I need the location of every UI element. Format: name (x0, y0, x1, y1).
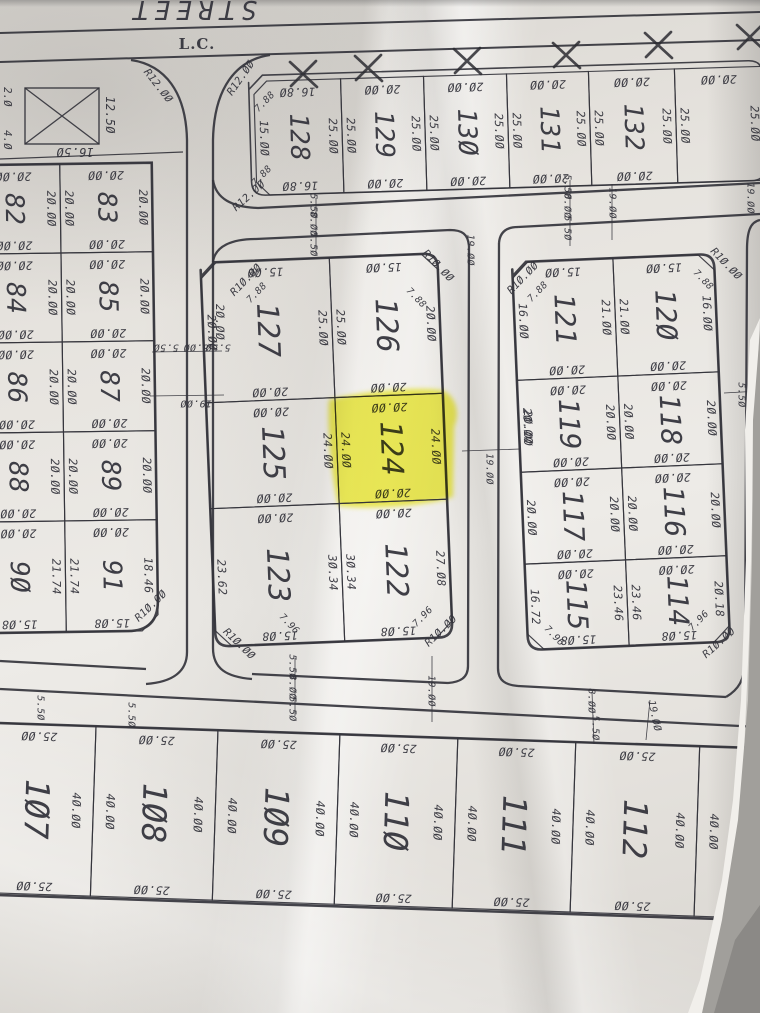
lot-number-130: 13Ø (451, 108, 482, 157)
lot-dimension: 2Ø.ØØ (0, 327, 34, 342)
lot-dimension: 2Ø.ØØ (91, 436, 127, 451)
street-dim-label: 19.ØØ (180, 398, 212, 410)
lot-dimension: 2Ø.ØØ (0, 506, 36, 521)
lot-dimension: 2Ø.ØØ (556, 546, 593, 562)
lot-dimension: 4Ø.ØØ (312, 800, 327, 837)
lot-dimension: 2Ø.ØØ (253, 404, 290, 419)
lot-number-122: 122 (377, 542, 414, 598)
lot-number-116: 116 (656, 485, 691, 538)
block-top-row: 16.8Ø16.8Ø15.ØØ25.ØØ1282Ø.ØØ2Ø.ØØ25.ØØ25… (248, 60, 760, 195)
lot-dimension: 2Ø.ØØ (607, 496, 623, 533)
lot-dimension: 25.ØØ (138, 733, 175, 748)
street-dim-label: 19.ØØ (465, 234, 477, 266)
cross-out-mark (355, 55, 382, 81)
lot-dimension: 25.ØØ (133, 883, 170, 898)
street-dim-label: 5.5Ø (308, 231, 320, 256)
lot-number-132: 132 (617, 103, 648, 152)
lot-dimension: 4Ø.ØØ (346, 802, 361, 839)
lot-number-120: 12Ø (648, 289, 683, 342)
lot-dimension: 25.ØØ (619, 749, 656, 764)
street-name-label: STREET (127, 0, 257, 24)
lot-dimension: 2Ø.ØØ (0, 437, 35, 452)
dim-label: 2Ø.ØØ (213, 304, 227, 340)
lot-dimension: 15.Ø8 (380, 624, 417, 639)
reserved-dim-label: 16.5Ø (56, 145, 94, 159)
lot-dimension: 4Ø.ØØ (582, 809, 597, 846)
lot-dimension: 21.74 (67, 558, 82, 594)
lot-dimension: 2Ø.ØØ (90, 346, 126, 361)
street-dim-label: 19.ØØ (426, 675, 438, 707)
lot-dimension: 4Ø.ØØ (430, 804, 445, 841)
lot-dimension: 15.ØØ (545, 265, 582, 281)
lot-dimension: 2Ø.ØØ (0, 258, 33, 273)
block-bottom: 25.ØØ25.ØØ4Ø.ØØ1Ø725.ØØ25.ØØ4Ø.ØØ4Ø.ØØ1Ø… (0, 722, 760, 921)
lot-number-117: 117 (556, 490, 591, 543)
lot-dimension: 2Ø.ØØ (423, 305, 438, 342)
lot-number-110: 11Ø (376, 790, 417, 852)
lot-number-87: 87 (94, 370, 124, 402)
lot-dimension: 21.ØØ (617, 298, 633, 335)
block-right: 15.ØØ2Ø.ØØ16.ØØ21.ØØ12115.ØØ2Ø.ØØ21.ØØ16… (512, 254, 730, 650)
lot-number-111: 111 (493, 794, 534, 856)
lot-dimension: 2Ø.ØØ (252, 384, 289, 399)
lot-dimension: 16.8Ø (279, 85, 316, 100)
lot-dimension: 23.46 (611, 585, 627, 622)
lot-dimension: 2Ø.ØØ (92, 505, 128, 520)
lot-dimension: 2Ø.ØØ (136, 189, 151, 225)
lot-number-109: 1Ø9 (256, 786, 297, 848)
lot-dimension: 3Ø.34 (325, 553, 340, 591)
lot-dimension: 2Ø.ØØ (137, 278, 152, 314)
corner-note-label: L.C. (179, 35, 216, 53)
street-dim-label: 5.5Ø (35, 695, 47, 720)
lot-dimension: 2Ø.ØØ (88, 168, 124, 183)
lot-number-86: 86 (1, 371, 31, 403)
lot-number-123: 123 (259, 547, 296, 603)
lot-dimension: 15.ØØ (645, 260, 682, 276)
lot-dimension: 25.ØØ (326, 118, 341, 155)
lot-dimension: 2Ø.ØØ (550, 382, 587, 398)
lot-dimension: 16.8Ø (282, 179, 319, 194)
lot-dimension: 25.ØØ (344, 117, 359, 154)
lot-dimension: 25.ØØ (380, 741, 417, 756)
reserved-dim-label: 12.5Ø (103, 96, 117, 134)
block-left: 2Ø.ØØ2Ø.ØØ2Ø.ØØ822Ø.ØØ2Ø.ØØ2Ø.ØØ2Ø.ØØ832… (0, 163, 158, 634)
lot-dimension: 2Ø.ØØ (44, 190, 59, 226)
lot-dimension: 4Ø.ØØ (548, 808, 563, 845)
lot-dimension: 15.ØØ (365, 260, 402, 275)
lot-number-84: 84 (0, 282, 30, 314)
lot-dimension: 16.72 (528, 588, 544, 625)
lot-dimension: 3Ø.34 (343, 553, 358, 591)
lot-dimension: 2Ø.ØØ (0, 417, 35, 432)
lot-dimension: 25.ØØ (748, 105, 760, 142)
lot-dimension: 25.ØØ (660, 108, 675, 145)
lot-number-112: 112 (614, 798, 655, 860)
lot-dimension: 25.ØØ (510, 112, 525, 149)
lot-dimension: 25.ØØ (315, 310, 330, 347)
radius-label: R12.ØØ (141, 67, 175, 106)
lot-dimension: 2Ø.ØØ (375, 506, 412, 521)
lot-dimension: 2Ø.ØØ (90, 326, 126, 341)
lot-dimension: 2Ø.ØØ (48, 458, 63, 494)
street-dim-label: 5.5Ø (205, 342, 230, 354)
lot-dimension: 2Ø.ØØ (0, 526, 36, 541)
cross-out-mark (737, 24, 760, 50)
lot-dimension: 2Ø.ØØ (530, 77, 567, 92)
reserved-plot (25, 88, 99, 144)
lot-dimension: 15.ØØ (257, 120, 272, 157)
lot-dimension: 2Ø.ØØ (524, 499, 540, 536)
cross-out-mark (645, 32, 672, 58)
street-dim-label: 5.5Ø (562, 215, 574, 240)
lot-dimension: 23.46 (629, 584, 645, 621)
lot-dimension: 4Ø.ØØ (464, 805, 479, 842)
lot-dimension: 25.ØØ (375, 891, 412, 906)
lot-number-107: 1Ø7 (16, 778, 57, 840)
lot-dimension: 2Ø.ØØ (700, 72, 737, 87)
lot-dimension: 2Ø.ØØ (139, 368, 154, 404)
reserved-dim-label: 2.Ø (1, 87, 13, 107)
lot-dimension: 15.Ø8 (2, 617, 38, 632)
lot-number-89: 89 (95, 460, 125, 492)
lot-dimension: 2Ø.ØØ (613, 75, 650, 90)
highlight-marker-lot-124 (327, 387, 460, 509)
street-dim-label: 5.5Ø (153, 342, 178, 354)
torn-paper-edge (688, 318, 760, 1013)
lot-dimension: 15.Ø8 (94, 616, 130, 631)
lot-dimension: 2Ø.ØØ (0, 169, 32, 184)
lot-dimension: 25.ØØ (333, 309, 348, 346)
lot-dimension: 2Ø.ØØ (0, 347, 34, 362)
lot-dimension: 2Ø.ØØ (256, 490, 293, 505)
lot-dimension: 2Ø.ØØ (0, 238, 33, 253)
lot-dimension: 16.ØØ (700, 295, 716, 332)
lot-number-115: 115 (559, 579, 594, 632)
lot-dimension: 2Ø.ØØ (704, 400, 720, 437)
street-dim-label: 19.ØØ (745, 182, 757, 214)
lot-dimension: 4Ø.ØØ (103, 793, 118, 830)
lot-dimension: 2Ø.ØØ (89, 237, 125, 252)
lot-number-119: 119 (552, 398, 587, 451)
lot-dimension: 2Ø.ØØ (257, 510, 294, 525)
cross-out-mark (454, 48, 481, 74)
lot-number-108: 1Ø8 (134, 782, 175, 844)
lot-number-128: 128 (283, 113, 314, 162)
lot-number-114: 114 (660, 574, 695, 627)
lot-dimension: 25.ØØ (493, 894, 530, 909)
lot-number-121: 121 (547, 293, 582, 346)
lot-dimension: 2Ø.ØØ (450, 174, 487, 189)
lot-dimension: 2Ø.ØØ (621, 403, 637, 440)
lot-dimension: 4Ø.ØØ (69, 792, 84, 829)
lot-number-88: 88 (2, 461, 32, 493)
lot-dimension: 2Ø.ØØ (364, 82, 401, 97)
lot-dimension: 23.62 (214, 559, 229, 596)
street-dim-label: 8.ØØ (183, 342, 208, 354)
lot-dimension: 2Ø.ØØ (47, 369, 62, 405)
plat-map-photo: 16.8Ø16.8Ø15.ØØ25.ØØ1282Ø.ØØ2Ø.ØØ25.ØØ25… (0, 0, 760, 1013)
lot-dimension: 25.ØØ (255, 887, 292, 902)
lot-dimension: 2Ø.ØØ (625, 495, 641, 532)
block-middle: 15.ØØ2Ø.ØØ2Ø.ØØ25.ØØ12715.ØØ2Ø.ØØ25.ØØ2Ø… (200, 253, 465, 647)
lot-dimension: 2Ø.ØØ (65, 369, 80, 405)
lot-dimension: 2Ø.ØØ (553, 474, 590, 490)
lot-dimension: 4Ø.ØØ (225, 797, 240, 834)
lot-number-127: 127 (249, 302, 286, 358)
chamfer-label: 7.88 (253, 90, 278, 115)
lot-dimension: 2Ø.ØØ (91, 416, 127, 431)
chamfer-label: 7.88 (526, 280, 551, 305)
lot-number-90: 9Ø (4, 561, 34, 593)
lot-number-129: 129 (368, 110, 399, 159)
lot-dimension: 2Ø.ØØ (367, 176, 404, 191)
street-dim-label: 5.5Ø (590, 715, 602, 740)
street-dim-label: 5.5Ø (736, 382, 748, 407)
lot-dimension: 25.ØØ (21, 729, 58, 744)
street-dim-label: 19.ØØ (484, 453, 496, 485)
lot-number-83: 83 (91, 192, 121, 224)
lot-dimension: 2Ø.ØØ (603, 404, 619, 441)
lot-dimension: 4Ø.ØØ (672, 812, 687, 849)
lot-dimension: 2Ø.ØØ (66, 458, 81, 494)
lot-dimension: 2Ø.ØØ (650, 358, 687, 374)
lot-dimension: 25.ØØ (574, 110, 589, 147)
chamfer-label: 7.88 (691, 268, 716, 293)
lot-dimension: 25.ØØ (260, 737, 297, 752)
lot-dimension: 2Ø.ØØ (657, 542, 694, 558)
lot-number-125: 125 (254, 425, 291, 481)
lot-number-126: 126 (367, 297, 404, 353)
lot-dimension: 21.74 (49, 558, 64, 594)
lot-dimension: 2Ø.ØØ (708, 492, 724, 529)
lot-number-118: 118 (653, 394, 688, 447)
lot-dimension: 2Ø.ØØ (549, 362, 586, 378)
lot-dimension: 4Ø.ØØ (706, 813, 721, 850)
lot-dimension: 2Ø.ØØ (616, 169, 653, 184)
lot-dimension: 25.ØØ (427, 115, 442, 152)
lot-dimension: 25.ØØ (498, 745, 535, 760)
lot-dimension: 21.ØØ (599, 299, 615, 336)
lot-dimension: 18.46 (141, 557, 156, 593)
lot-number-82: 82 (0, 193, 29, 225)
lot-dimension: 2Ø.ØØ (140, 457, 155, 493)
lot-dimension: 25.ØØ (16, 879, 53, 894)
lot-dimension: 25.ØØ (678, 107, 693, 144)
dim-label: 2Ø.ØØ (521, 410, 535, 446)
lot-dimension: 25.ØØ (492, 113, 507, 150)
chamfer-label: 7.96 (411, 605, 436, 630)
street-dim-label: 19.ØØ (607, 187, 619, 219)
lot-dimension: 4Ø.ØØ (191, 796, 206, 833)
plat-map-svg: 16.8Ø16.8Ø15.ØØ25.ØØ1282Ø.ØØ2Ø.ØØ25.ØØ25… (0, 0, 760, 1013)
lot-dimension: 25.ØØ (614, 898, 651, 913)
lot-dimension: 2Ø.ØØ (553, 454, 590, 470)
street-dim-label: 5.5Ø (126, 702, 138, 727)
lot-dimension: 2Ø.ØØ (93, 525, 129, 540)
street-dim-label: 5.5Ø (287, 696, 299, 721)
lot-dimension: 2Ø.ØØ (650, 378, 687, 394)
lot-dimension: 2Ø.ØØ (447, 80, 484, 95)
lot-dimension: 2Ø.ØØ (45, 279, 60, 315)
reserved-dim-label: 4.Ø (1, 130, 13, 150)
lot-number-85: 85 (92, 281, 122, 313)
lot-dimension: 16.ØØ (516, 303, 532, 340)
lot-dimension: 2Ø.ØØ (654, 470, 691, 486)
lot-number-131: 131 (533, 105, 564, 154)
lot-dimension: 2Ø.ØØ (63, 279, 78, 315)
lot-dimension: 25.ØØ (409, 115, 424, 152)
lot-dimension: 25.ØØ (592, 110, 607, 147)
street-dim-label: 8.ØØ (586, 688, 598, 713)
lot-dimension: 2Ø.ØØ (62, 190, 77, 226)
lot-dimension: 2Ø.ØØ (653, 450, 690, 466)
lot-dimension: 2Ø.ØØ (89, 257, 125, 272)
lot-number-91: 91 (96, 560, 126, 592)
lot-dimension: 2Ø.18 (711, 581, 727, 618)
lot-dimension: 27.Ø8 (433, 550, 448, 587)
